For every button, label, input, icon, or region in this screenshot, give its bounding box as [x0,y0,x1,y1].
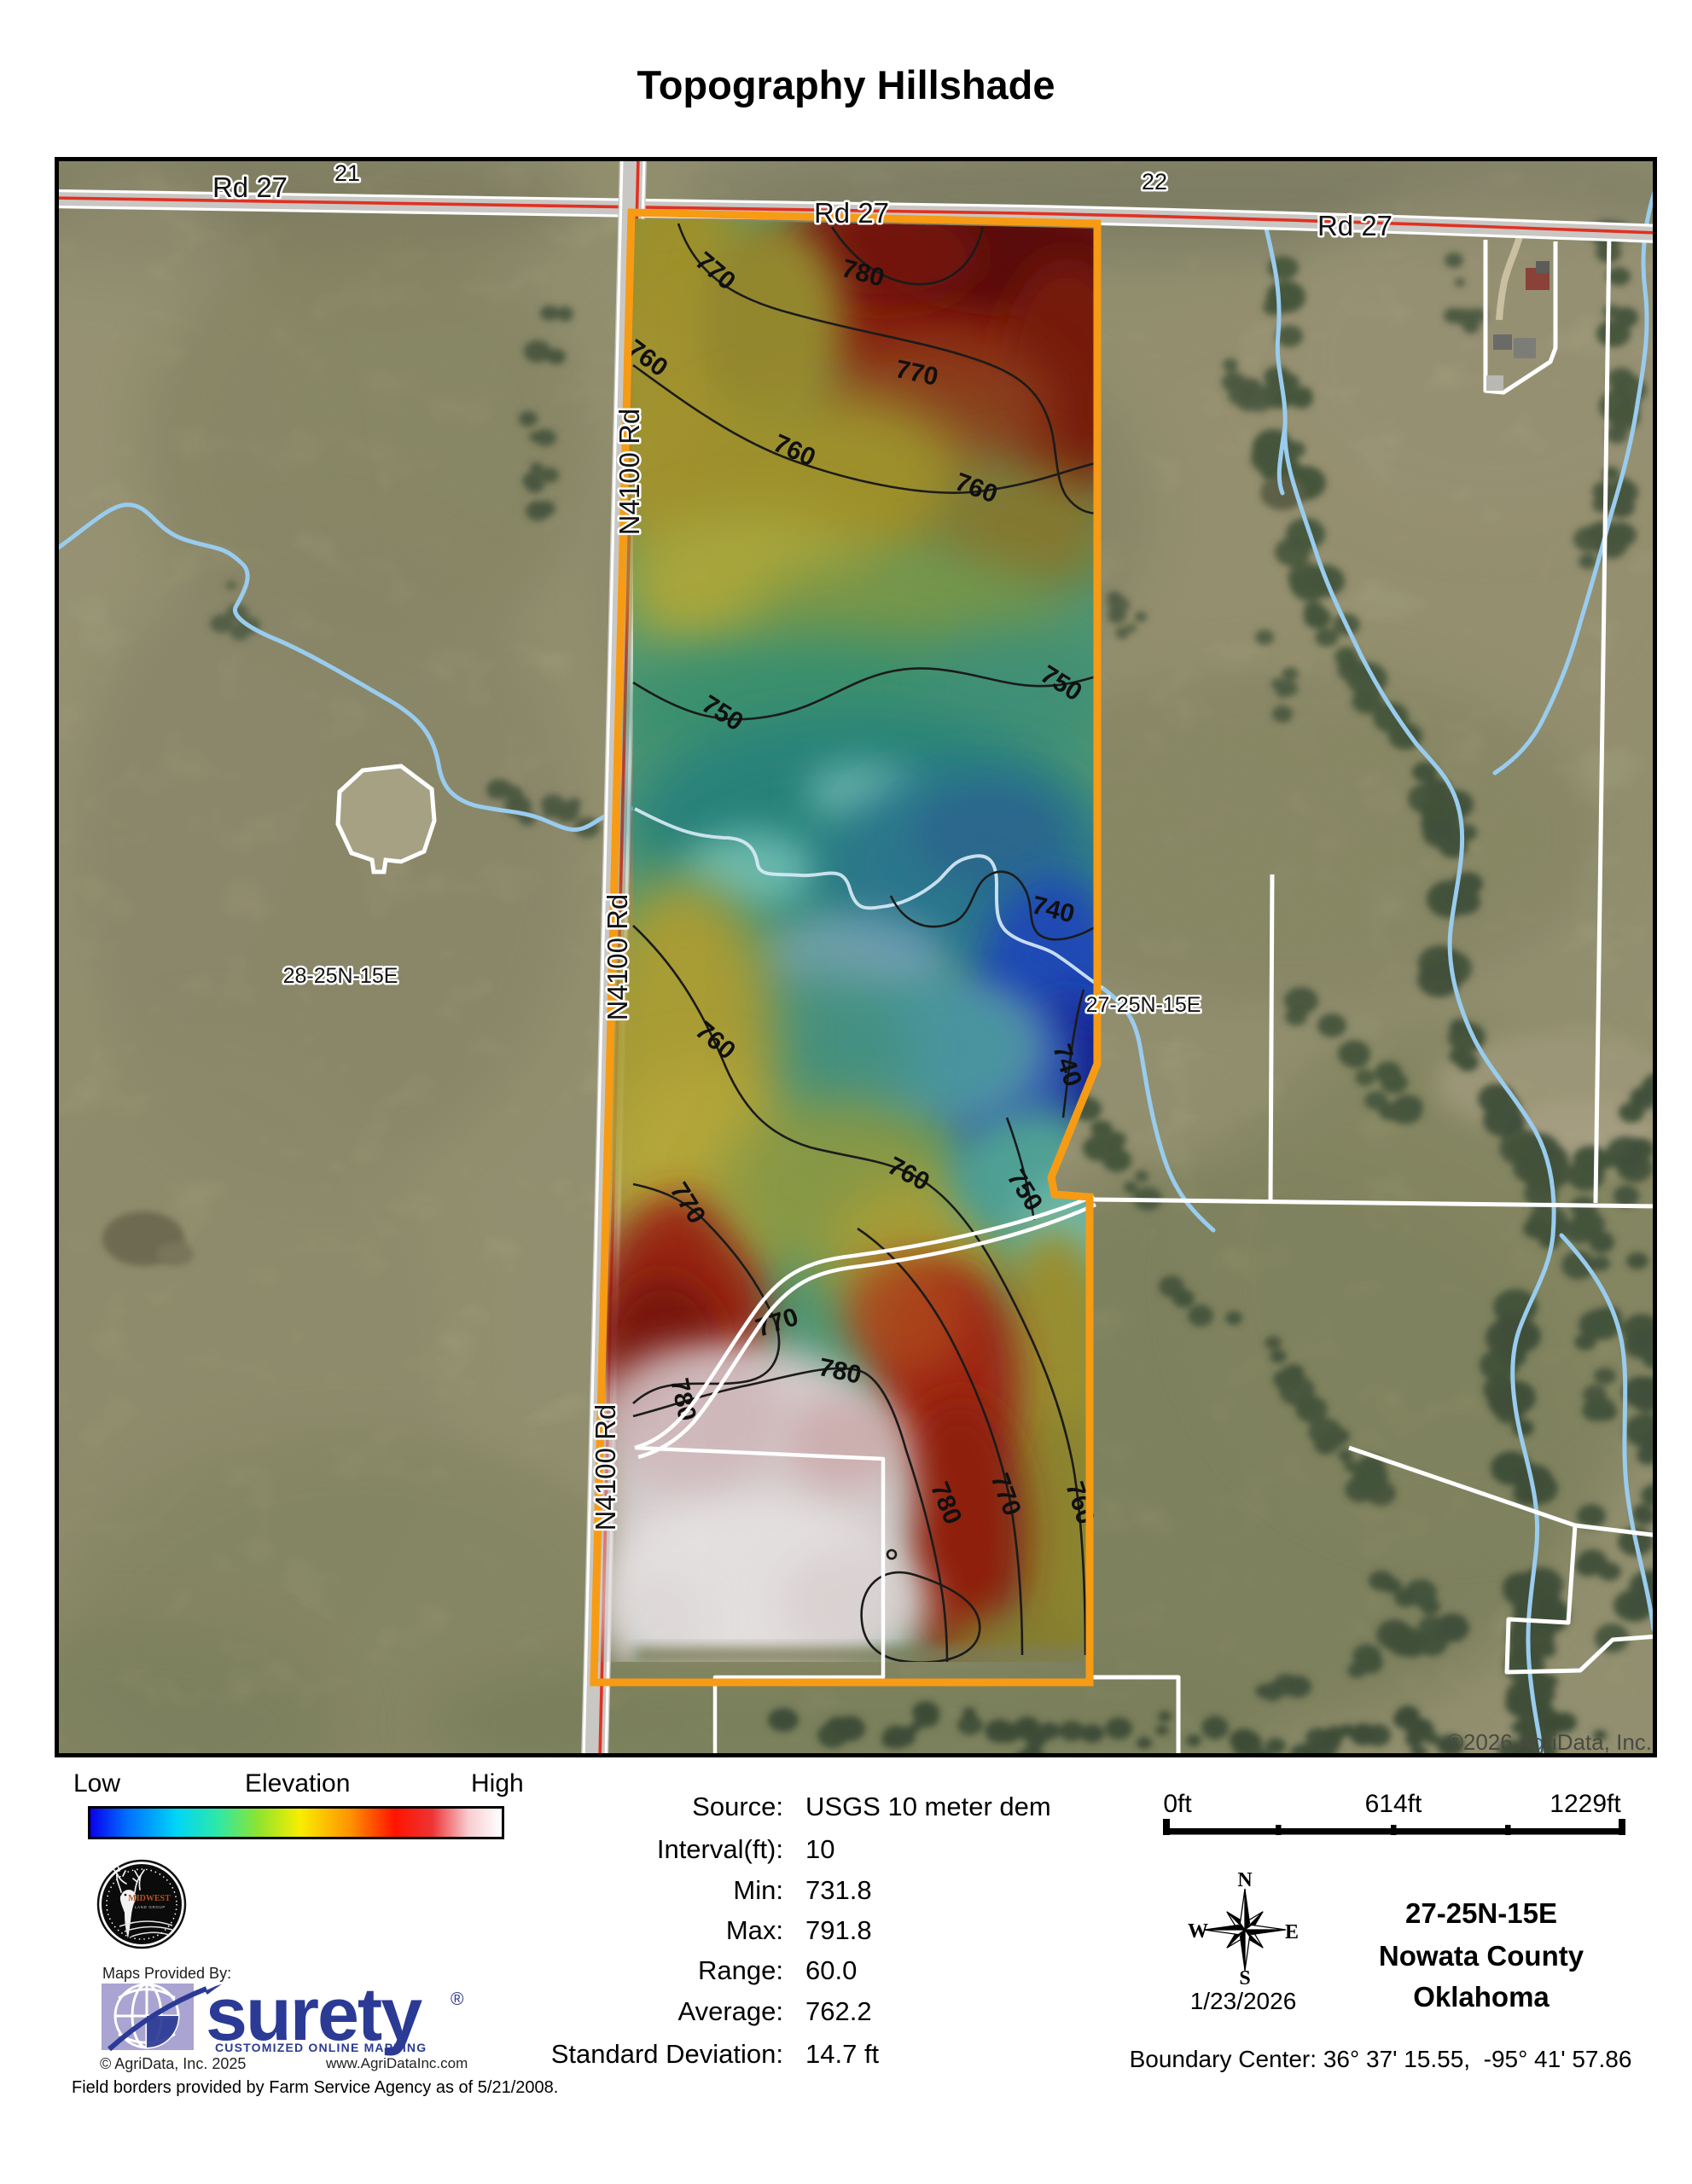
svg-text:S: S [1239,1967,1250,1989]
svg-text:N: N [1237,1870,1253,1891]
svg-text:21: 21 [334,160,360,186]
svg-text:©2026 AgriData, Inc.: ©2026 AgriData, Inc. [1447,1729,1652,1755]
svg-text:Rd 27: Rd 27 [814,197,889,229]
svg-text:Rd 27: Rd 27 [212,171,288,203]
svg-text:N4100 Rd: N4100 Rd [613,409,645,536]
svg-text:N4100 Rd: N4100 Rd [590,1404,621,1531]
svg-text:27-25N-15E: 27-25N-15E [1086,993,1201,1017]
svg-text:Rd 27: Rd 27 [1317,210,1393,241]
svg-text:N4100 Rd: N4100 Rd [602,894,633,1021]
svg-text:E: E [1285,1921,1299,1943]
svg-text:22: 22 [1142,169,1167,195]
svg-text:W: W [1188,1920,1208,1943]
svg-text:28-25N-15E: 28-25N-15E [283,964,398,988]
